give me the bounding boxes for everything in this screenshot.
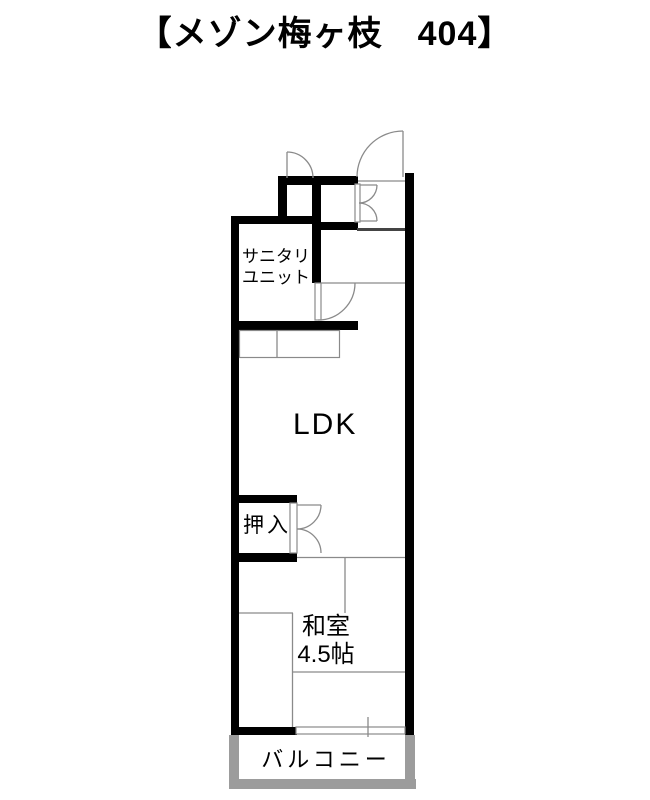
washitsu-label-size: 4.5帖 bbox=[297, 641, 354, 669]
wall-oshiire-bottom bbox=[231, 553, 297, 562]
shoe-closet-door-arc-top bbox=[359, 185, 377, 203]
meter-box-door-arc bbox=[287, 152, 313, 178]
oshiire-door-arc-top bbox=[297, 505, 321, 529]
oshiire-door-jamb bbox=[290, 503, 297, 553]
wall-left-upper bbox=[278, 176, 287, 222]
wall-sanitary-top bbox=[231, 216, 321, 224]
wall-shoe-closet-bottom bbox=[312, 222, 358, 230]
kitchen-counter bbox=[240, 331, 340, 358]
balcony-wall-right bbox=[405, 735, 415, 789]
entrance-door-arc bbox=[357, 131, 403, 177]
balcony-label: バルコニー bbox=[261, 742, 391, 774]
ldk-label: LDK bbox=[293, 408, 357, 442]
sanitary-unit-label-line2: ユニット bbox=[242, 267, 310, 288]
sanitary-door-leaf bbox=[315, 283, 321, 320]
floor-plan-drawing bbox=[0, 0, 650, 800]
window-sill bbox=[296, 727, 405, 734]
sanitary-unit-label-line1: サニタリ bbox=[242, 246, 310, 267]
sanitary-door-arc bbox=[318, 283, 355, 320]
oshiire-label: 押入 bbox=[243, 509, 291, 539]
wall-oshiire-top bbox=[239, 495, 297, 503]
wall-kitchen-top bbox=[231, 321, 358, 330]
shoe-closet-door-arc-bottom bbox=[359, 203, 377, 221]
wall-right bbox=[405, 173, 414, 735]
oshiire-door-arc-bottom bbox=[297, 529, 321, 553]
washitsu-label: 和室 4.5帖 bbox=[295, 613, 356, 670]
floor-plan-page: 【メゾン梅ヶ枝 404】 bbox=[0, 0, 650, 800]
wall-left bbox=[231, 216, 239, 735]
washitsu-label-name: 和室 bbox=[297, 613, 354, 641]
wall-washitsu-bottom bbox=[239, 727, 297, 735]
balcony-wall-bottom bbox=[229, 779, 416, 789]
sanitary-unit-label: サニタリ ユニット bbox=[242, 246, 310, 289]
